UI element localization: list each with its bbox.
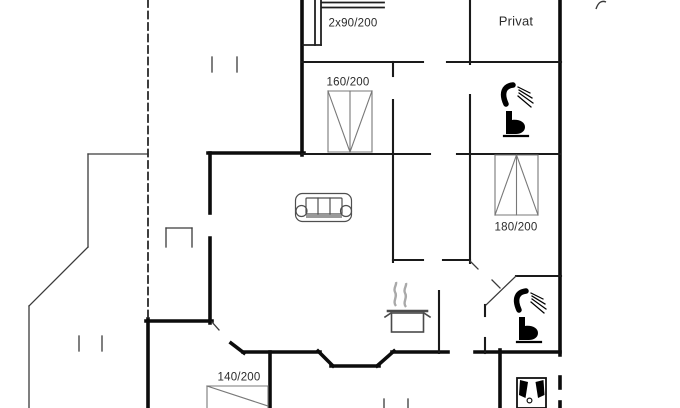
double-bed-180 [495,155,538,215]
bed-140 [207,386,268,408]
label-room-privat: Privat [499,15,533,28]
sofa [296,194,352,222]
interior-walls [302,0,561,353]
label-bed-160-size: 160/200 [327,77,370,89]
stove-pot [385,282,430,332]
thin-lines [29,57,516,408]
washing-machine-icon [517,378,546,408]
label-bunk-bed-size: 2x90/200 [329,18,378,30]
floorplan-canvas [0,0,680,408]
label-bed-180-size: 180/200 [495,222,538,234]
cut-off-mark-top-right [596,1,606,9]
toilet-shower-icon-top [504,85,533,136]
toilet-shower-icon-bottom [517,291,546,342]
label-bed-140-size: 140/200 [218,372,261,384]
floorplan-page: 2x90/200Privat160/200180/200140/200 [0,0,680,408]
double-bed-160 [328,91,372,152]
